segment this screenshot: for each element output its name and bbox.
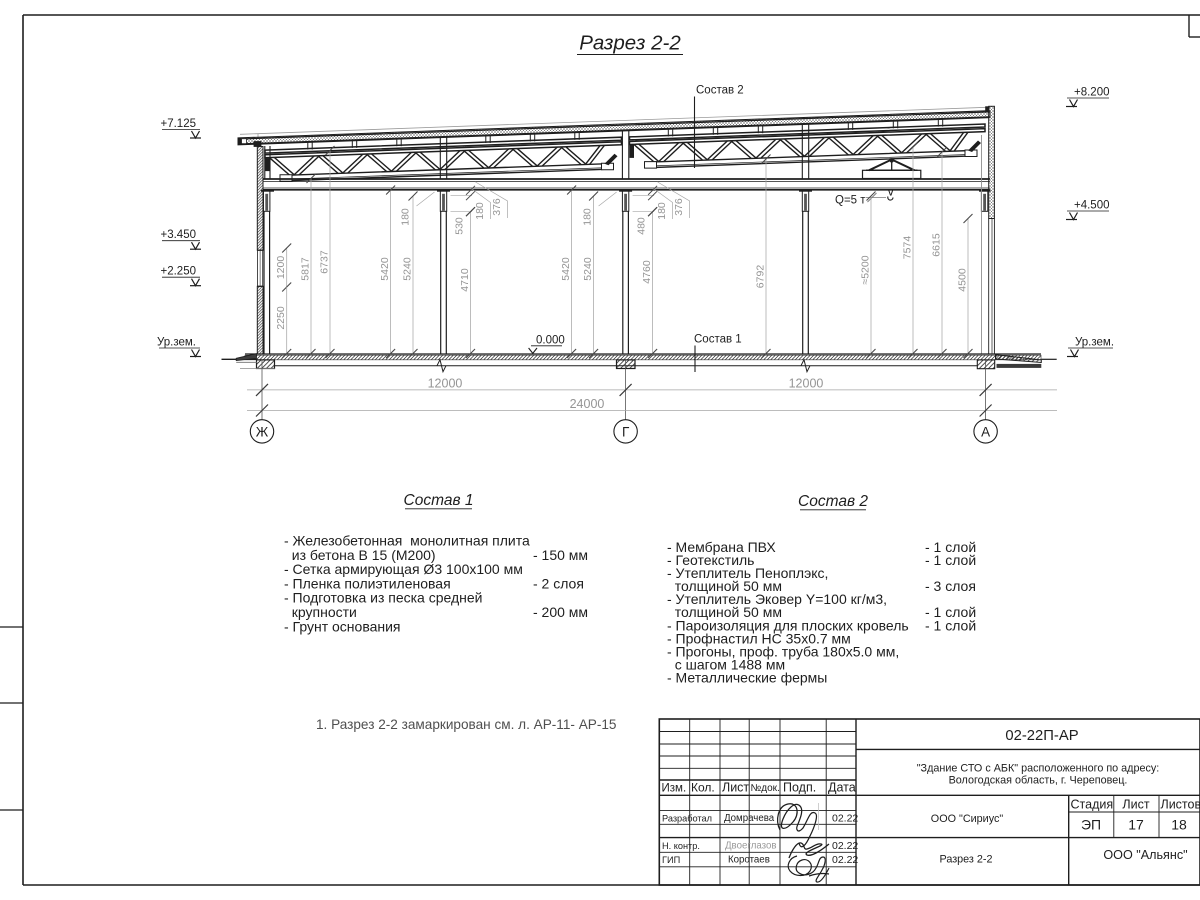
- svg-text:4500: 4500: [957, 268, 969, 292]
- svg-text:2250: 2250: [275, 306, 287, 330]
- svg-text:530: 530: [454, 217, 466, 235]
- svg-text:Стадия: Стадия: [1071, 798, 1114, 812]
- svg-text:24000: 24000: [570, 397, 605, 411]
- svg-text:0.000: 0.000: [536, 335, 565, 347]
- svg-text:376: 376: [491, 198, 503, 216]
- svg-text:Разрез 2-2: Разрез 2-2: [939, 854, 992, 866]
- svg-text:Состав 2: Состав 2: [798, 493, 868, 510]
- svg-text:Н. контр.: Н. контр.: [662, 841, 700, 851]
- svg-text:4710: 4710: [459, 268, 471, 292]
- svg-text:6792: 6792: [755, 265, 767, 289]
- svg-text:1. Разрез 2-2 замаркирован см.: 1. Разрез 2-2 замаркирован см. л. АР-11-…: [316, 717, 617, 732]
- svg-text:Кол.: Кол.: [691, 781, 715, 795]
- svg-text:480: 480: [636, 217, 648, 235]
- svg-text:18: 18: [1171, 817, 1187, 833]
- svg-text:Дата: Дата: [828, 781, 856, 795]
- svg-text:Подп.: Подп.: [783, 781, 816, 795]
- svg-text:≈5200: ≈5200: [860, 255, 872, 284]
- svg-text:Лист: Лист: [722, 781, 749, 795]
- svg-text:+8.200: +8.200: [1074, 87, 1110, 99]
- svg-text:- 1 слой: - 1 слой: [925, 552, 976, 568]
- svg-text:Состав 1: Состав 1: [404, 492, 474, 509]
- svg-text:180: 180: [400, 208, 412, 226]
- svg-text:- Металлические фермы: - Металлические фермы: [667, 670, 827, 686]
- svg-text:Листов: Листов: [1161, 798, 1200, 812]
- svg-text:5240: 5240: [582, 257, 594, 281]
- svg-text:Состав 1: Состав 1: [694, 334, 742, 346]
- svg-text:02.22: 02.22: [832, 854, 858, 866]
- svg-text:17: 17: [1128, 817, 1144, 833]
- svg-text:№док.: №док.: [751, 783, 780, 794]
- svg-text:376: 376: [673, 198, 685, 216]
- svg-text:1200: 1200: [275, 256, 287, 280]
- svg-text:5420: 5420: [560, 257, 572, 281]
- svg-text:Коротаев: Коротаев: [728, 855, 770, 866]
- svg-text:Состав 2: Состав 2: [696, 85, 744, 97]
- svg-text:ЭП: ЭП: [1081, 817, 1101, 833]
- svg-text:Г: Г: [622, 424, 630, 439]
- svg-text:+7.125: +7.125: [161, 118, 197, 130]
- svg-text:02.22: 02.22: [832, 840, 858, 852]
- svg-text:ООО "Альянс": ООО "Альянс": [1103, 848, 1187, 862]
- svg-text:- Грунт основания: - Грунт основания: [284, 618, 401, 634]
- svg-text:12000: 12000: [789, 376, 824, 390]
- svg-text:02-22П-АР: 02-22П-АР: [1005, 728, 1078, 744]
- svg-text:Вологодская область, г. Черепо: Вологодская область, г. Череповец.: [949, 775, 1128, 787]
- svg-text:Q=5 т: Q=5 т: [835, 195, 866, 207]
- svg-text:ГИП: ГИП: [662, 855, 680, 865]
- svg-text:Двоеглазов: Двоеглазов: [725, 841, 777, 852]
- svg-text:- 2 слоя: - 2 слоя: [533, 575, 584, 591]
- svg-text:- 1 слой: - 1 слой: [925, 617, 976, 633]
- svg-text:Разработал: Разработал: [662, 814, 712, 824]
- svg-text:Лист: Лист: [1122, 798, 1149, 812]
- svg-text:Ур.зем.: Ур.зем.: [1075, 337, 1114, 349]
- svg-text:Ж: Ж: [256, 424, 269, 439]
- svg-text:"Здание СТО с АБК" расположенн: "Здание СТО с АБК" расположенного по адр…: [917, 763, 1160, 775]
- svg-text:Домрачева: Домрачева: [724, 813, 775, 824]
- svg-text:180: 180: [656, 202, 668, 220]
- svg-text:6615: 6615: [931, 233, 943, 257]
- svg-text:- 3 слоя: - 3 слоя: [925, 578, 976, 594]
- svg-text:180: 180: [582, 208, 594, 226]
- svg-text:- 150 мм: - 150 мм: [533, 547, 588, 563]
- svg-text:6737: 6737: [319, 250, 331, 274]
- svg-text:Ур.зем.: Ур.зем.: [157, 337, 196, 349]
- svg-text:5240: 5240: [402, 257, 414, 281]
- svg-text:Разрез 2-2: Разрез 2-2: [579, 32, 681, 55]
- svg-text:5817: 5817: [300, 257, 312, 281]
- svg-text:Изм.: Изм.: [662, 783, 687, 795]
- svg-text:7574: 7574: [902, 236, 914, 260]
- svg-text:ООО "Сириус": ООО "Сириус": [931, 813, 1004, 825]
- svg-text:А: А: [981, 424, 990, 439]
- svg-text:180: 180: [474, 202, 486, 220]
- svg-text:5420: 5420: [379, 257, 391, 281]
- svg-text:+2.250: +2.250: [161, 266, 197, 278]
- svg-text:4760: 4760: [641, 260, 653, 284]
- svg-text:- 200 мм: - 200 мм: [533, 604, 588, 620]
- svg-text:12000: 12000: [428, 376, 463, 390]
- svg-text:02.22: 02.22: [832, 813, 858, 825]
- svg-text:+3.450: +3.450: [161, 229, 197, 241]
- svg-text:+4.500: +4.500: [1074, 200, 1110, 212]
